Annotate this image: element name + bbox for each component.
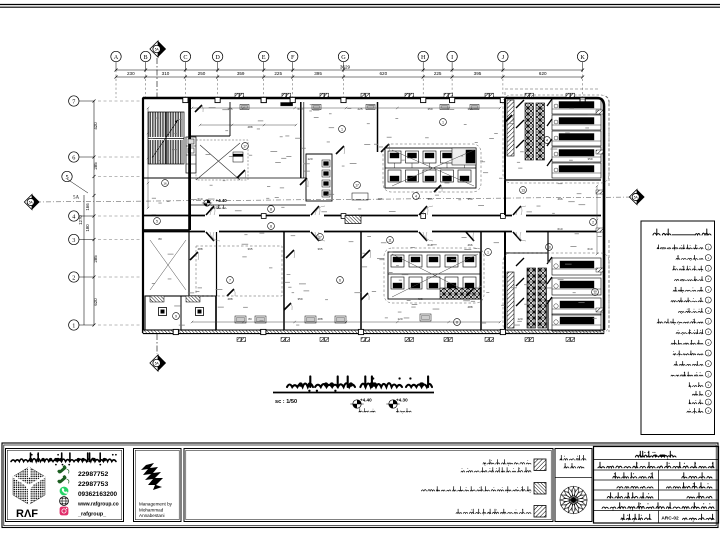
svg-text:_rafgroup_: _rafgroup_ [77,512,107,518]
svg-text:359: 359 [467,197,472,201]
svg-text:4: 4 [546,139,548,143]
svg-text:1270: 1270 [78,215,83,225]
svg-text:3629: 3629 [340,64,351,69]
svg-text:395: 395 [247,247,252,251]
svg-text:285: 285 [93,162,98,170]
svg-text:1: 1 [487,251,489,255]
svg-text:16: 16 [163,182,167,186]
svg-text:359: 359 [587,157,592,161]
svg-text:7: 7 [72,98,75,105]
svg-text:359: 359 [297,297,302,301]
svg-text:620: 620 [539,71,547,76]
svg-text:22987753: 22987753 [78,481,108,488]
svg-text:G: G [341,54,346,61]
svg-text:359: 359 [427,107,432,111]
svg-text:2: 2 [592,221,594,225]
svg-text:8: 8 [270,225,272,229]
svg-text:09362163200: 09362163200 [78,491,118,498]
svg-text:488: 488 [537,107,542,111]
svg-text:285: 285 [93,255,98,263]
svg-text:A: A [114,54,119,61]
svg-text:H: H [421,54,426,61]
svg-text:8: 8 [456,321,458,325]
svg-text:5: 5 [156,220,158,224]
svg-text:120: 120 [307,157,312,161]
svg-text:+4.40: +4.40 [360,398,372,403]
svg-text:13: 13 [521,189,525,193]
svg-text:230: 230 [127,71,135,76]
svg-text:310: 310 [162,71,170,76]
svg-text:17: 17 [243,145,247,149]
svg-text:466: 466 [557,197,562,201]
svg-text:E: E [262,54,266,61]
svg-text:D: D [215,54,220,61]
svg-text:RΛF: RΛF [16,508,38,520]
svg-text:www.rafgroup.co: www.rafgroup.co [77,502,119,508]
svg-text:+4.40: +4.40 [216,198,228,203]
svg-text:359: 359 [237,71,245,76]
svg-text:5A: 5A [73,196,80,201]
svg-text:6: 6 [72,154,75,161]
svg-text:Annabestani: Annabestani [139,513,165,518]
svg-text:466: 466 [467,243,472,247]
svg-text:395: 395 [467,107,472,111]
svg-text:395: 395 [474,71,482,76]
svg-text:120: 120 [517,317,522,321]
svg-text:1: 1 [442,121,444,125]
svg-text:17: 17 [355,184,359,188]
svg-text:180: 180 [85,224,90,232]
svg-text:610: 610 [587,247,592,251]
svg-text:488: 488 [197,247,202,251]
svg-text:488: 488 [467,305,472,309]
svg-text:225: 225 [274,71,282,76]
svg-text:620: 620 [380,71,388,76]
svg-text:488: 488 [227,297,232,301]
svg-text:80: 80 [158,237,162,241]
svg-text:620: 620 [93,298,98,306]
svg-text:F: F [291,54,295,61]
svg-text:395: 395 [427,197,432,201]
svg-text:610: 610 [297,107,302,111]
svg-text:K: K [580,54,585,61]
svg-text:11: 11 [388,239,392,243]
svg-text:488: 488 [317,317,322,321]
svg-text:610: 610 [197,197,202,201]
svg-text:+4.30: +4.30 [396,398,408,403]
svg-text:488: 488 [417,297,422,301]
svg-text:395: 395 [314,71,322,76]
svg-text:sc : 1/50: sc : 1/50 [275,399,297,405]
svg-text:Mohammad: Mohammad [139,508,164,513]
svg-text:4: 4 [415,195,417,199]
svg-text:7: 7 [229,279,231,283]
svg-text:610: 610 [557,227,562,231]
svg-text:10: 10 [547,246,551,250]
svg-text:395: 395 [317,247,322,251]
svg-text:225: 225 [434,71,442,76]
svg-text:9: 9 [175,315,177,319]
svg-text:C: C [183,54,187,61]
svg-text:ARC-02: ARC-02 [661,516,679,522]
svg-text:250: 250 [198,71,206,76]
svg-text:395: 395 [227,107,232,111]
svg-text:6: 6 [339,279,341,283]
svg-text:3: 3 [72,237,75,244]
svg-text:Management by: Management by [139,502,173,507]
svg-text:488: 488 [377,197,382,201]
svg-text:488: 488 [247,125,252,129]
svg-text:166: 166 [85,203,90,211]
svg-text:I: I [451,54,453,61]
svg-text:420: 420 [93,122,98,130]
svg-text:B: B [144,54,148,61]
svg-text:80: 80 [248,317,252,321]
svg-text:2: 2 [72,274,75,281]
svg-text:1: 1 [72,322,75,329]
svg-text:22987752: 22987752 [78,471,108,478]
svg-text:4: 4 [72,213,75,220]
svg-text:1: 1 [341,128,343,132]
svg-text:225: 225 [357,107,362,111]
svg-text:120: 120 [397,317,402,321]
svg-text:8: 8 [270,208,272,212]
